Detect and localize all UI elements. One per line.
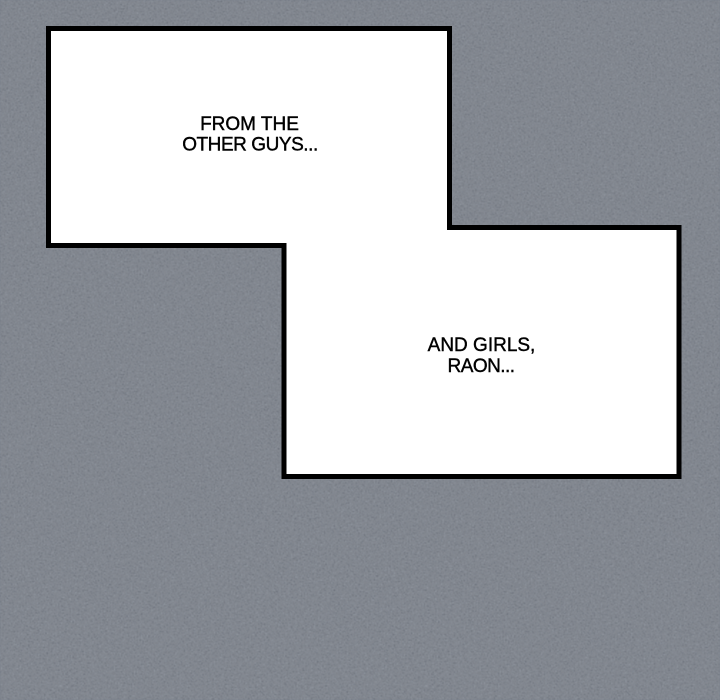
svg-text:OTHER GUYS...: OTHER GUYS... — [182, 134, 318, 155]
svg-text:RAON...: RAON... — [448, 356, 515, 377]
svg-text:FROM THE: FROM THE — [200, 114, 299, 135]
svg-text:AND GIRLS,: AND GIRLS, — [428, 335, 536, 356]
